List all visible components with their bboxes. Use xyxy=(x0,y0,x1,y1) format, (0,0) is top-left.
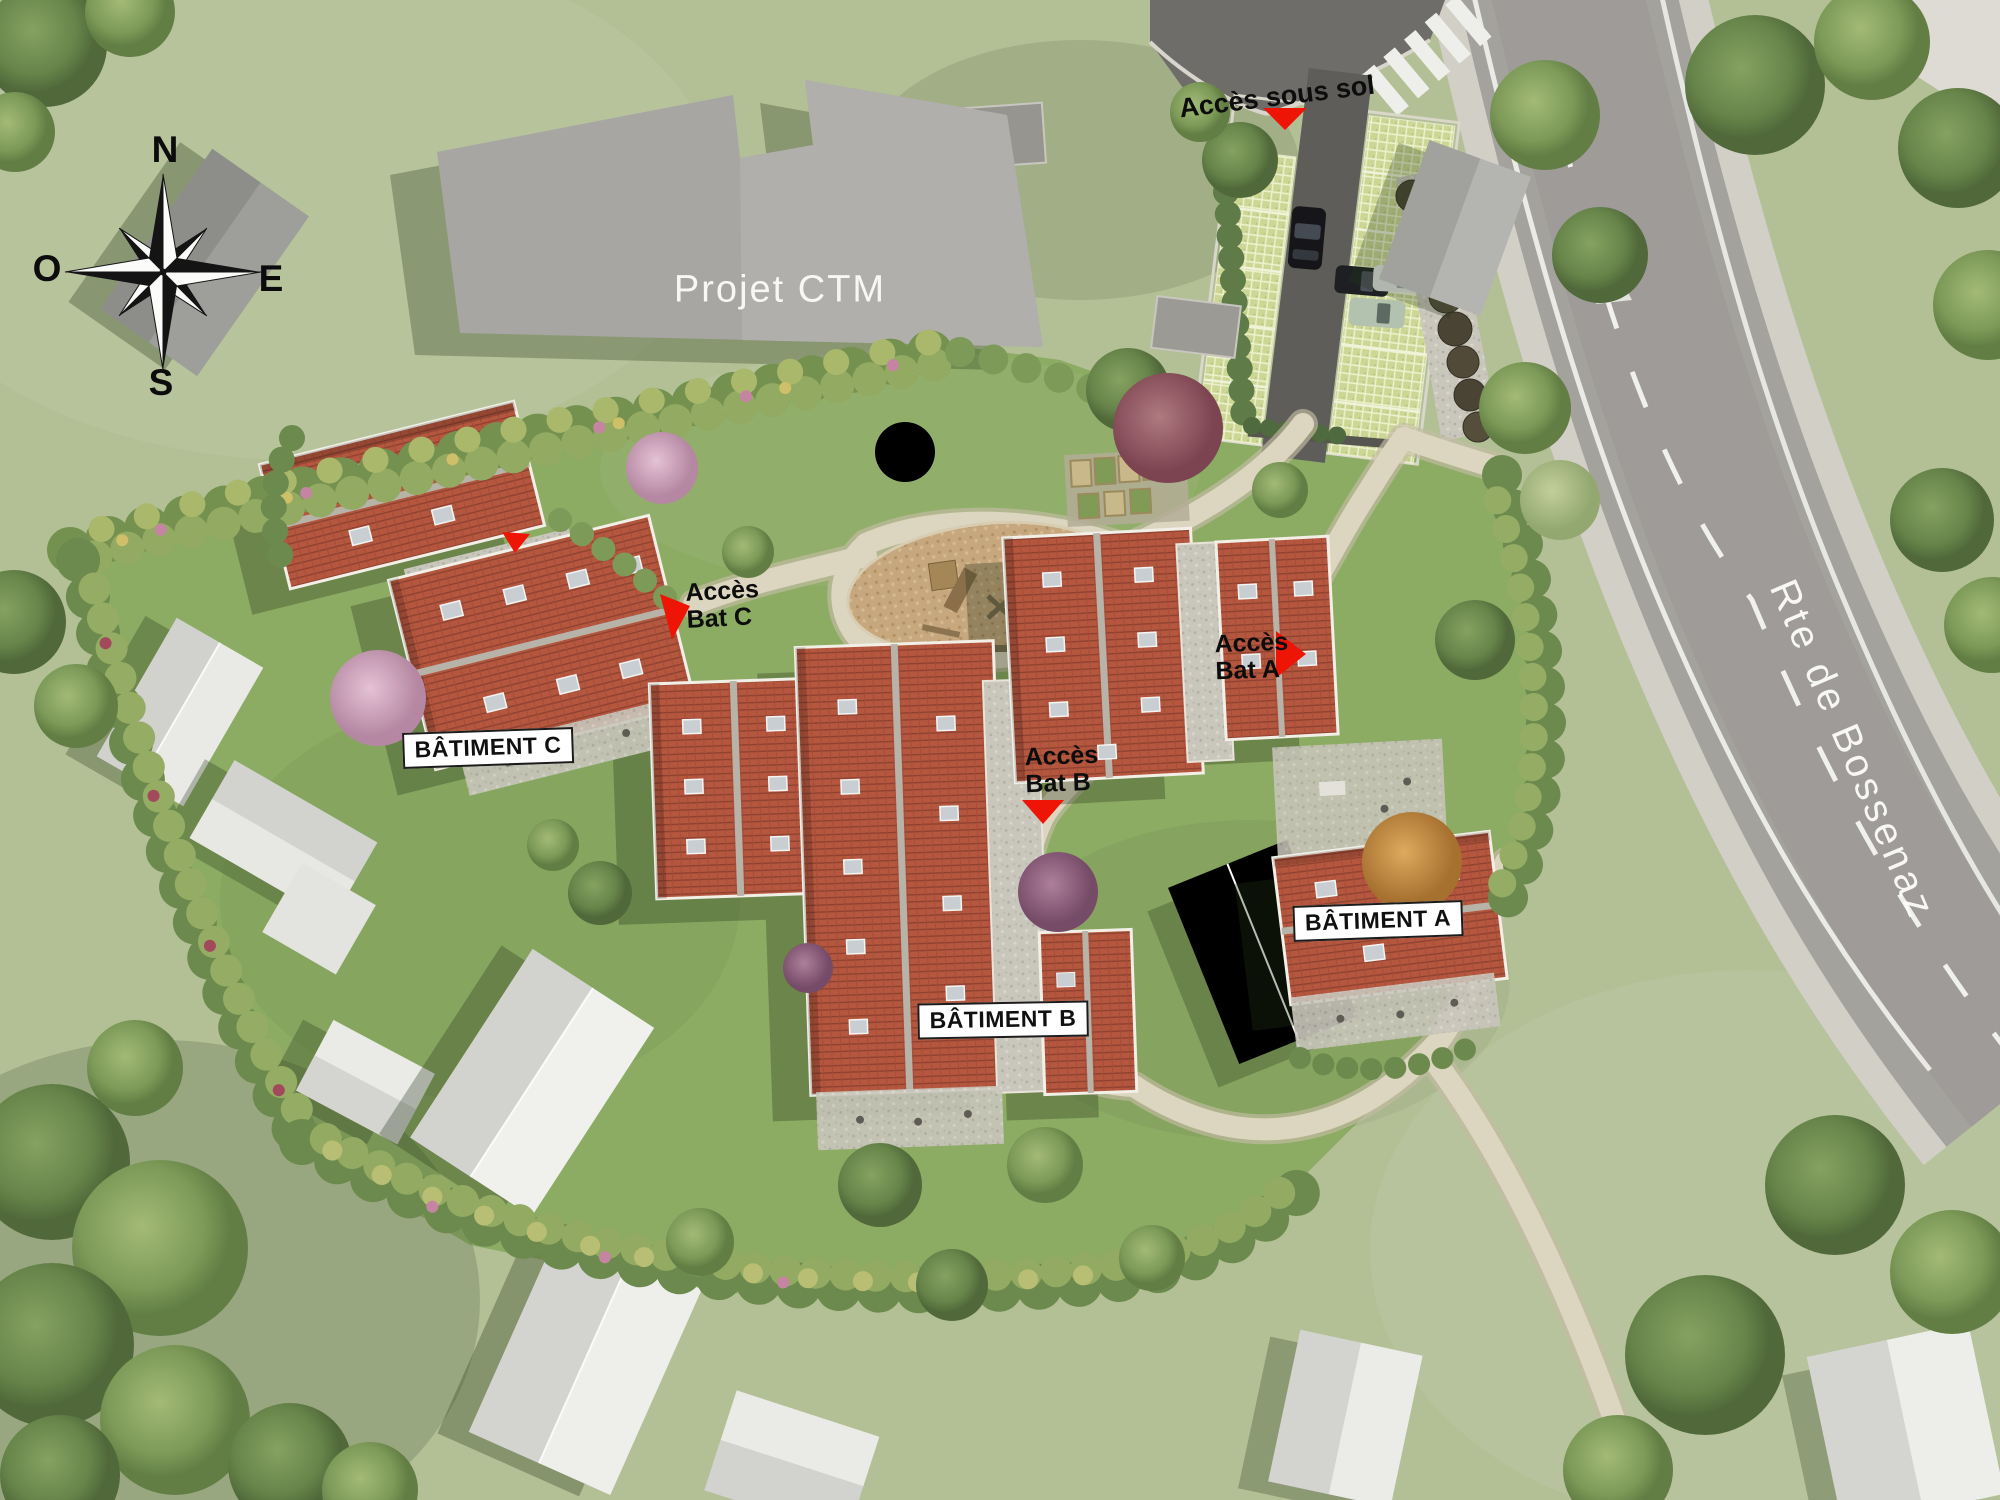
skylight xyxy=(943,896,961,911)
compass-center xyxy=(160,269,167,276)
skylight xyxy=(937,716,955,731)
compass-label-west: O xyxy=(33,248,62,290)
skylight xyxy=(1098,744,1117,759)
red-maple-tree xyxy=(1113,373,1223,483)
acces-bat-c-line2: Bat C xyxy=(686,603,761,634)
allotment-bed xyxy=(1078,493,1099,518)
tree xyxy=(1479,362,1571,454)
site-plan: N O E S Projet CTM Accès sous sol Accès … xyxy=(0,0,2000,1500)
terrace xyxy=(816,1086,1004,1150)
allotment-bed xyxy=(1094,458,1115,485)
skylight xyxy=(1294,581,1313,596)
skylight xyxy=(1049,702,1068,717)
batiment-a-label: BÂTIMENT A xyxy=(1292,900,1463,942)
tree xyxy=(568,861,632,925)
skylight xyxy=(1046,637,1065,652)
skylight xyxy=(1135,567,1154,582)
skylight xyxy=(767,716,785,731)
batiment-b-terrace xyxy=(816,1086,1004,1150)
tree xyxy=(1520,460,1600,540)
tree xyxy=(1435,600,1515,680)
acces-bat-b-line2: Bat B xyxy=(1025,769,1100,799)
purple-tree xyxy=(1018,852,1098,932)
skylight xyxy=(940,806,958,821)
site-plan-rendering xyxy=(0,0,2000,1500)
allotment-bed xyxy=(1130,489,1151,514)
tree xyxy=(875,422,935,482)
skylight xyxy=(1138,632,1157,647)
patio-table xyxy=(1319,781,1346,796)
skylight xyxy=(1363,944,1385,961)
allotment-bed xyxy=(1070,460,1091,487)
car-glass xyxy=(1376,303,1390,324)
car-green xyxy=(1348,297,1406,329)
bush xyxy=(1438,312,1472,346)
skylight xyxy=(771,836,789,851)
tree xyxy=(916,1249,988,1321)
tree xyxy=(34,664,118,748)
batiment-b-label: BÂTIMENT B xyxy=(917,1001,1088,1040)
skylight xyxy=(844,859,862,874)
tree xyxy=(666,1208,734,1276)
car-black xyxy=(1287,206,1326,271)
skylight xyxy=(769,776,787,791)
projet-ctm-label: Projet CTM xyxy=(674,269,886,312)
skylight xyxy=(1043,572,1062,587)
skylight xyxy=(1238,584,1257,599)
shed-roof xyxy=(1151,296,1241,358)
purple-shrub xyxy=(783,943,833,993)
tree xyxy=(1007,1127,1083,1203)
compass-label-north: N xyxy=(152,129,179,171)
tree xyxy=(1119,1225,1185,1291)
skylight xyxy=(1315,880,1337,897)
tree xyxy=(87,1020,183,1116)
acces-bat-a-line2: Bat A xyxy=(1215,656,1290,686)
tree xyxy=(1552,207,1648,303)
acces-bat-b-line1: Accès xyxy=(1024,742,1099,772)
bush xyxy=(1447,346,1479,378)
autumn-tree xyxy=(1362,812,1462,912)
skylight xyxy=(838,699,856,714)
skylight xyxy=(946,986,964,1001)
skylight xyxy=(841,779,859,794)
acces-bat-b-label: Accès Bat B xyxy=(1024,742,1100,799)
tree xyxy=(1890,468,1994,572)
tree xyxy=(1685,15,1825,155)
allotment-bed xyxy=(1104,491,1125,516)
skylight xyxy=(1141,697,1160,712)
batiment-c-label: BÂTIMENT C xyxy=(402,727,574,769)
skylight xyxy=(1057,972,1075,987)
car-glass xyxy=(1294,223,1321,240)
compass-label-east: E xyxy=(259,258,284,300)
cherry-tree xyxy=(626,432,698,504)
skylight xyxy=(846,939,864,954)
tree xyxy=(722,526,774,578)
acces-bat-a-line1: Accès xyxy=(1214,629,1289,659)
skylight xyxy=(849,1019,867,1034)
shed xyxy=(1151,296,1241,358)
skylight xyxy=(685,779,703,794)
skylight xyxy=(683,719,701,734)
skylight xyxy=(687,839,705,854)
acces-bat-c-label: Accès Bat C xyxy=(685,576,761,634)
tree xyxy=(527,819,579,871)
tree xyxy=(100,1345,250,1495)
tree xyxy=(1252,462,1308,518)
tree xyxy=(1490,60,1600,170)
tree xyxy=(1625,1275,1785,1435)
tree xyxy=(1765,1115,1905,1255)
tree xyxy=(838,1143,922,1227)
compass-label-south: S xyxy=(149,362,174,404)
cherry-tree xyxy=(330,650,426,746)
acces-bat-a-label: Accès Bat A xyxy=(1214,629,1290,686)
